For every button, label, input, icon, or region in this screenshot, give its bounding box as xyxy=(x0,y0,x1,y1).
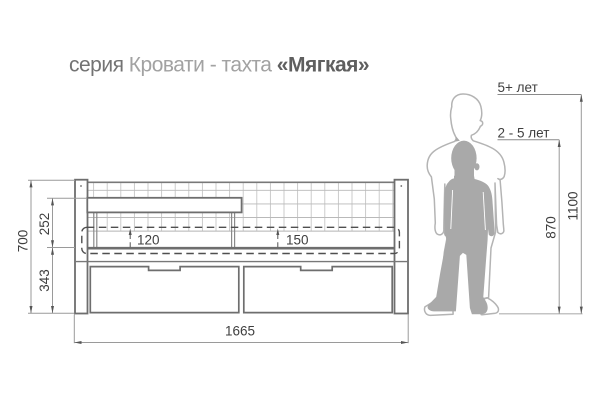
svg-text:1665: 1665 xyxy=(225,324,255,339)
svg-text:870: 870 xyxy=(544,216,559,239)
svg-text:5+ лет: 5+ лет xyxy=(498,80,538,95)
svg-text:1100: 1100 xyxy=(566,191,581,220)
svg-text:252: 252 xyxy=(37,213,52,236)
svg-text:343: 343 xyxy=(37,269,52,292)
svg-text:2 - 5 лет: 2 - 5 лет xyxy=(498,125,550,140)
svg-text:150: 150 xyxy=(286,233,309,248)
svg-text:700: 700 xyxy=(16,230,31,253)
svg-text:120: 120 xyxy=(137,232,160,247)
svg-text:серия Кровати - тахта «Мягкая»: серия Кровати - тахта «Мягкая» xyxy=(69,54,369,77)
